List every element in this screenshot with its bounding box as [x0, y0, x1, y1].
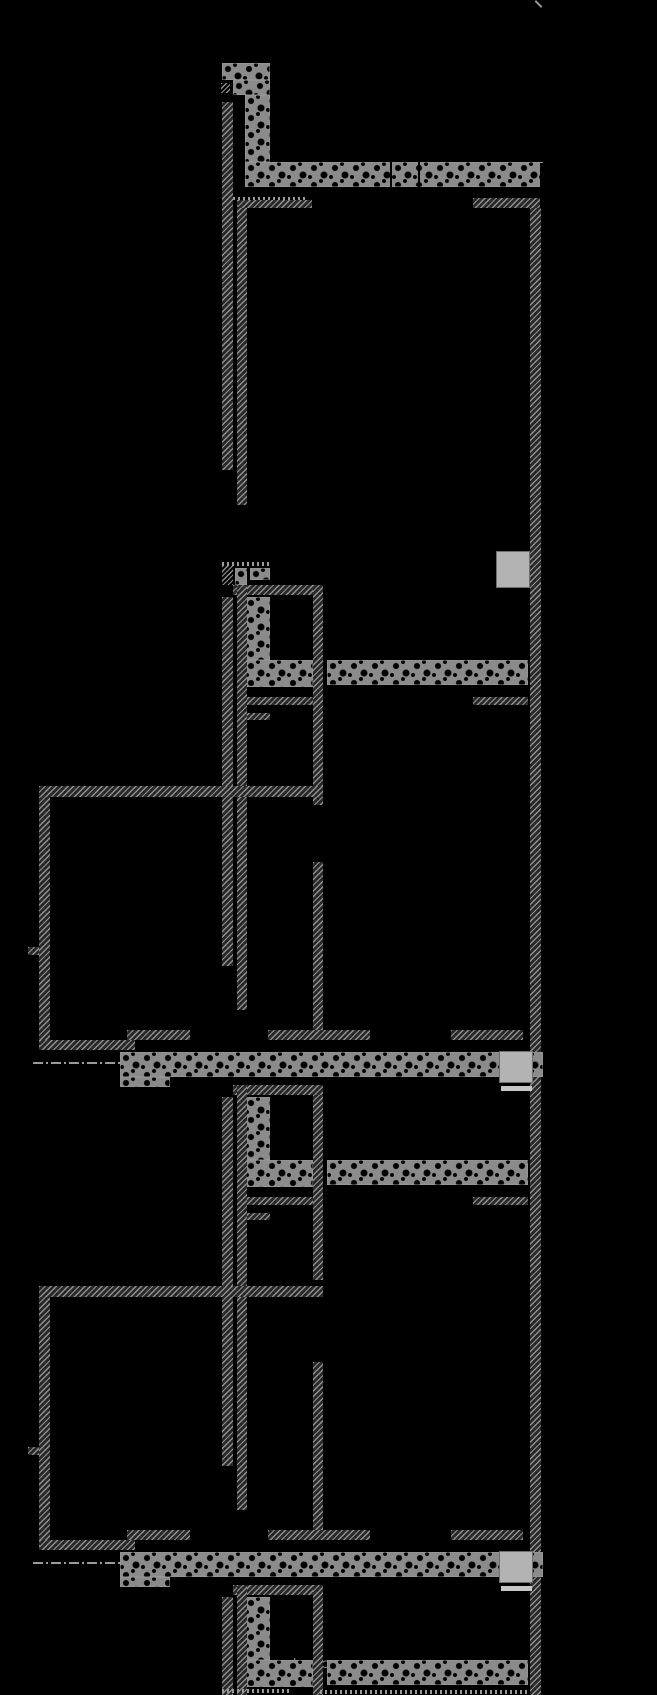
room2-wall-tick [28, 1447, 39, 1455]
room2-top-wall [39, 1286, 323, 1297]
dotted-edge-bottom-right [320, 1690, 530, 1694]
window-block-unit2-b [250, 568, 270, 580]
stair-band-unit2-right [327, 660, 528, 685]
bright-strip-slab2 [501, 1586, 532, 1591]
partition-unit3-mid [237, 1197, 313, 1205]
window-block-unit2-a [235, 568, 247, 585]
outer-wall-left-seg4 [222, 1597, 233, 1695]
corridor-wall-unit3-upper [313, 1095, 323, 1280]
bright-block-wall [496, 551, 530, 588]
room2-bottom-wall-left [40, 1540, 135, 1550]
slab-end-joint [540, 163, 543, 187]
survey-mark-unit1 [221, 83, 230, 93]
north-tick [535, 0, 543, 8]
partition-unit2-mid [237, 697, 313, 705]
room2-bottom-wall-step [127, 1530, 190, 1540]
floor-wall-right-2 [451, 1530, 523, 1540]
outer-wall-left-seg2 [222, 597, 233, 966]
slab-joint-2 [418, 162, 420, 187]
stair-band-unit4-left [245, 1660, 313, 1687]
survey-mark-unit2 [222, 566, 233, 585]
room1-bottom-wall-left [40, 1040, 135, 1050]
rubble-pier-unit4 [245, 1597, 270, 1660]
room2-left-wall [39, 1297, 50, 1550]
inner-wall-left-seg2 [237, 585, 247, 1010]
slab-band-unit1 [245, 162, 543, 187]
floor-slab-band-1-heel [120, 1077, 170, 1087]
partition-top-right [473, 198, 540, 208]
room1-left-wall [39, 797, 50, 1050]
inner-wall-left-seg3 [237, 1085, 247, 1510]
rubble-pier-unit1 [245, 95, 270, 162]
slab-joint-1 [390, 162, 392, 187]
floor-slab-band-2-heel [120, 1577, 170, 1587]
stair-band-unit2-left [245, 660, 313, 687]
floor-slab-band-2 [120, 1552, 543, 1577]
rubble-pier-unit3 [245, 1097, 270, 1160]
stair-band-unit3-left [245, 1160, 313, 1187]
floor-slab-band-1 [120, 1052, 543, 1077]
bright-block-slab2 [499, 1551, 533, 1583]
inner-wall-left-seg1 [237, 200, 247, 505]
axis-dashdot-2 [33, 1562, 120, 1564]
room1-top-wall [39, 786, 323, 797]
inner-wall-left-seg4 [237, 1585, 247, 1695]
bright-strip-slab1 [501, 1086, 532, 1091]
stair-band-unit4-right [327, 1660, 528, 1685]
floor-wall-mid-2 [268, 1530, 370, 1540]
axis-dashdot-1 [33, 1062, 120, 1064]
outer-wall-left-seg1 [222, 102, 233, 470]
floor-wall-right-1 [451, 1030, 523, 1040]
corridor-wall-unit3-lower [313, 1362, 323, 1530]
outer-wall-left-seg3 [222, 1097, 233, 1466]
outer-wall-right [530, 208, 541, 1695]
corridor-wall-unit4 [313, 1585, 323, 1695]
lintel-right-unit2 [473, 697, 528, 705]
bright-block-slab1 [499, 1051, 533, 1083]
corridor-wall-unit2-upper [313, 585, 323, 805]
section-drawing-canvas: balanel microzone [0, 0, 657, 1695]
rubble-pier-unit2 [245, 597, 270, 660]
floor-wall-mid-1 [268, 1030, 370, 1040]
room1-bottom-wall-step [127, 1030, 190, 1040]
dotted-edge-bottom-left [222, 1689, 292, 1693]
partition-top-left [238, 200, 312, 208]
stair-band-unit3-right [327, 1160, 528, 1185]
corridor-wall-unit2-lower [313, 862, 323, 1030]
rubble-pier-top-block-lower [233, 80, 270, 95]
lintel-right-unit3 [473, 1197, 528, 1205]
rubble-pier-top-block-upper [222, 63, 270, 80]
room1-wall-tick [28, 947, 39, 955]
